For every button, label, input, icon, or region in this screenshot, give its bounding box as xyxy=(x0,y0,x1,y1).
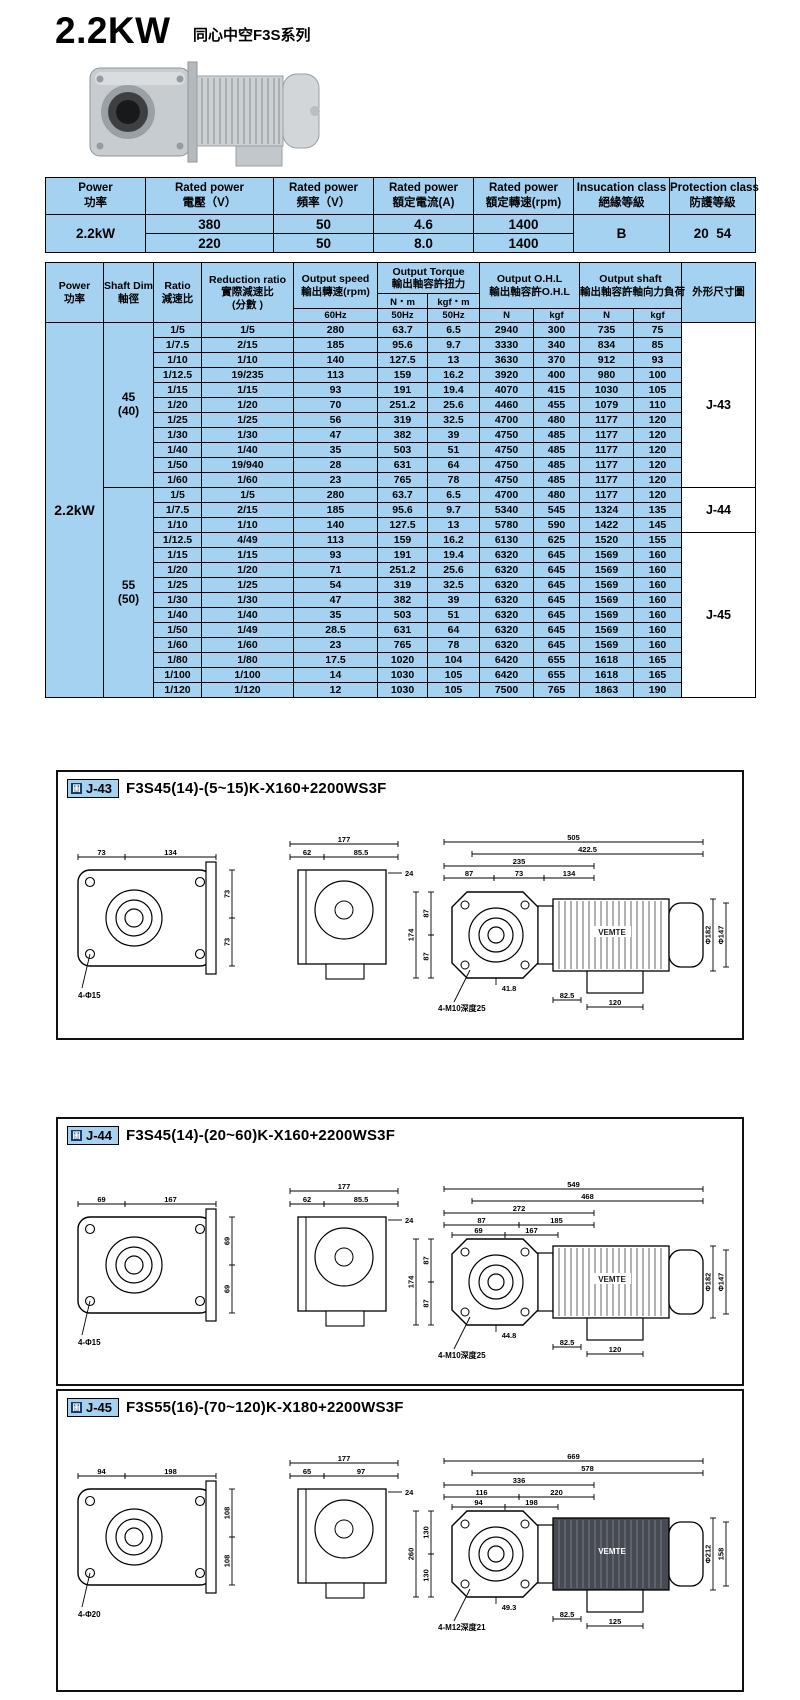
cell-shaftload-kgf: 120 xyxy=(634,428,682,443)
cell-torque-kgfm: 78 xyxy=(428,638,480,653)
cell-torque-kgfm: 9.7 xyxy=(428,338,480,353)
dimension-label: 94 xyxy=(474,1498,483,1507)
cell-ratio: 1/40 xyxy=(154,443,202,458)
circle-el xyxy=(196,1569,205,1578)
cell-reduction: 1/20 xyxy=(202,398,294,413)
cell-ohl-n: 3630 xyxy=(480,353,534,368)
dimension-label: 134 xyxy=(563,869,576,878)
shaft-alt-value: (50) xyxy=(104,593,153,607)
cell-torque-kgfm: 32.5 xyxy=(428,578,480,593)
cell-ratio: 1/30 xyxy=(154,593,202,608)
cell-shaftload-n: 912 xyxy=(580,353,634,368)
cell-torque-nm: 382 xyxy=(378,593,428,608)
cell-ohl-n: 6420 xyxy=(480,668,534,683)
cell-ohl-n: 4750 xyxy=(480,428,534,443)
cell-speed: 140 xyxy=(294,518,378,533)
diagram-label: 圖J-44 xyxy=(67,1126,119,1145)
cell-ohl-kgf: 485 xyxy=(534,458,580,473)
cell-speed: 93 xyxy=(294,383,378,398)
cell-shaftload-n: 980 xyxy=(580,368,634,383)
cell-ratio: 1/50 xyxy=(154,623,202,638)
spec-current: 4.6 xyxy=(374,215,474,234)
dimension-label: 87 xyxy=(422,1299,431,1307)
circle-el xyxy=(461,1308,469,1316)
div-el: 防護等級 xyxy=(670,196,755,211)
cell-speed: 113 xyxy=(294,533,378,548)
circle-el xyxy=(521,901,529,909)
cell-ohl-kgf: 400 xyxy=(534,368,580,383)
circle-el xyxy=(196,1225,205,1234)
cell-shaftload-n: 1422 xyxy=(580,518,634,533)
dimension-label: 97 xyxy=(357,1467,365,1476)
cell-shaftload-kgf: 145 xyxy=(634,518,682,533)
dimension-label: 158 xyxy=(717,1548,726,1561)
tr-el: 2.2kW 380 50 4.6 1400 B 20 54 xyxy=(46,215,756,234)
rect-el xyxy=(298,1489,386,1583)
circle-el xyxy=(196,878,205,887)
photo-bolt xyxy=(177,143,184,150)
cell-reduction: 1/15 xyxy=(202,548,294,563)
spec-current: 8.0 xyxy=(374,234,474,253)
circle-el xyxy=(461,901,469,909)
cell-shaftload-n: 1569 xyxy=(580,563,634,578)
cell-speed: 185 xyxy=(294,503,378,518)
cell-ohl-kgf: 485 xyxy=(534,473,580,488)
cell-shaftload-kgf: 93 xyxy=(634,353,682,368)
dimension-label: 116 xyxy=(475,1488,487,1497)
spec-col-protection: Protection class防護等級 xyxy=(670,178,756,215)
cell-shaftload-kgf: 160 xyxy=(634,608,682,623)
cell-shaftload-n: 1177 xyxy=(580,458,634,473)
dimension-label: 87 xyxy=(422,1256,431,1264)
cell-ohl-kgf: 645 xyxy=(534,608,580,623)
rect-el xyxy=(326,964,364,979)
cell-shaftload-n: 1569 xyxy=(580,593,634,608)
page-title: 2.2KW xyxy=(55,10,171,52)
rect-el xyxy=(669,903,703,967)
cell-torque-kgfm: 105 xyxy=(428,683,480,698)
cell-shaftload-kgf: 190 xyxy=(634,683,682,698)
diagram-id: J-44 xyxy=(86,1128,112,1143)
dimension-label: 167 xyxy=(164,1195,177,1204)
cell-reduction: 2/15 xyxy=(202,338,294,353)
dimension-label: VEMTE xyxy=(598,1547,626,1556)
cell-torque-nm: 319 xyxy=(378,413,428,428)
cell-torque-nm: 127.5 xyxy=(378,353,428,368)
dimension-label: Φ182 xyxy=(704,1273,713,1292)
col-ratio: Ratio減速比 xyxy=(154,263,202,323)
spec-power: 2.2kW xyxy=(46,215,146,253)
cell-speed: 47 xyxy=(294,593,378,608)
div-el: 功率 xyxy=(46,293,103,305)
diagram-box-j45: 圖J-45 F3S55(16)-(70~120)K-X180+2200WS3F … xyxy=(56,1389,744,1692)
dimension-label: 220 xyxy=(550,1488,563,1497)
cell-ohl-n: 4750 xyxy=(480,473,534,488)
div-el: 軸徑 xyxy=(104,293,153,305)
sub-kgf: kgf xyxy=(534,309,580,323)
rect-el xyxy=(78,870,212,966)
spec-insulation: B xyxy=(574,215,670,253)
cell-speed: 35 xyxy=(294,443,378,458)
cell-shaftload-n: 1569 xyxy=(580,623,634,638)
cell-reduction: 1/10 xyxy=(202,518,294,533)
cell-torque-kgfm: 104 xyxy=(428,653,480,668)
dimension-label: 44.8 xyxy=(502,1331,517,1340)
cell-ratio: 1/25 xyxy=(154,578,202,593)
cell-torque-kgfm: 19.4 xyxy=(428,548,480,563)
cell-reduction: 1/30 xyxy=(202,593,294,608)
cell-ratio: 1/15 xyxy=(154,383,202,398)
cell-ohl-n: 6420 xyxy=(480,653,534,668)
cell-reduction: 4/49 xyxy=(202,533,294,548)
cell-shaftload-n: 1079 xyxy=(580,398,634,413)
cell-ohl-n: 6320 xyxy=(480,638,534,653)
cell-torque-nm: 127.5 xyxy=(378,518,428,533)
div-el: 電壓（V） xyxy=(146,196,273,211)
cell-torque-kgfm: 32.5 xyxy=(428,413,480,428)
cell-outline-drawing-ref: J-44 xyxy=(682,488,756,533)
dimension-label: 125 xyxy=(609,1617,622,1626)
line-el xyxy=(454,970,470,1002)
cell-ohl-n: 6320 xyxy=(480,563,534,578)
cell-ratio: 1/5 xyxy=(154,323,202,338)
dimension-label: 69 xyxy=(223,1285,232,1293)
cell-ohl-kgf: 590 xyxy=(534,518,580,533)
circle-el xyxy=(461,1580,469,1588)
dimension-label: 108 xyxy=(223,1507,232,1520)
cell-reduction: 1/49 xyxy=(202,623,294,638)
col-shaft-dim: Shaft Dim軸徑 xyxy=(104,263,154,323)
col-outline-drawing: 外形尺寸圖 xyxy=(682,263,756,323)
cell-shaftload-n: 1569 xyxy=(580,638,634,653)
dimension-label: 468 xyxy=(581,1192,594,1201)
cell-torque-kgfm: 64 xyxy=(428,458,480,473)
cell-shaftload-kgf: 165 xyxy=(634,653,682,668)
cell-torque-nm: 1030 xyxy=(378,683,428,698)
spec-protection: 20 54 xyxy=(670,215,756,253)
circle-el xyxy=(196,950,205,959)
dimension-label: 4-Φ20 xyxy=(78,1610,101,1619)
rect-el xyxy=(587,971,643,993)
cell-speed: 23 xyxy=(294,638,378,653)
cell-ratio: 1/40 xyxy=(154,608,202,623)
diagram-title-row: 圖J-43 F3S45(14)-(5~15)K-X160+2200WS3F xyxy=(58,772,742,798)
dimension-label: 69 xyxy=(97,1195,105,1204)
cell-ratio: 1/60 xyxy=(154,473,202,488)
dimension-label: 24 xyxy=(405,1488,414,1497)
cell-shaftload-kgf: 110 xyxy=(634,398,682,413)
cell-shaftload-kgf: 160 xyxy=(634,623,682,638)
cell-torque-nm: 251.2 xyxy=(378,563,428,578)
cell-torque-nm: 159 xyxy=(378,533,428,548)
cell-speed: 28.5 xyxy=(294,623,378,638)
cell-shaftload-kgf: 105 xyxy=(634,383,682,398)
col-output-speed: Output speed輸出轉速(rpm) xyxy=(294,263,378,309)
spec-speed: 1400 xyxy=(474,234,574,253)
col-output-ohl: Output O.H.L輸出軸容許O.H.L xyxy=(480,263,580,309)
rect-el xyxy=(587,1590,643,1612)
div-el: 實際減速比 xyxy=(202,286,293,298)
rect-el xyxy=(206,1481,216,1593)
cell-torque-nm: 503 xyxy=(378,608,428,623)
series-subtitle: 同心中空F3S系列 xyxy=(193,24,311,45)
div-el: Power xyxy=(46,280,103,292)
cell-torque-kgfm: 19.4 xyxy=(428,383,480,398)
cell-shaftload-kgf: 120 xyxy=(634,443,682,458)
diagram-icon: 圖 xyxy=(71,783,82,794)
cell-ohl-kgf: 645 xyxy=(534,593,580,608)
diagram-icon: 圖 xyxy=(71,1130,82,1141)
cell-reduction: 1/60 xyxy=(202,638,294,653)
cell-ohl-kgf: 480 xyxy=(534,413,580,428)
cell-torque-nm: 95.6 xyxy=(378,503,428,518)
cell-reduction: 2/15 xyxy=(202,503,294,518)
cell-ratio: 1/30 xyxy=(154,428,202,443)
diagram-id: J-45 xyxy=(86,1400,112,1415)
cell-torque-nm: 765 xyxy=(378,638,428,653)
cell-torque-kgfm: 13 xyxy=(428,353,480,368)
div-el: 功率 xyxy=(46,196,145,211)
circle-el xyxy=(521,1248,529,1256)
div-el: (分數 ) xyxy=(202,299,293,311)
circle-el xyxy=(86,1497,95,1506)
cell-ohl-kgf: 645 xyxy=(534,578,580,593)
cell-shaftload-kgf: 100 xyxy=(634,368,682,383)
dimension-label: 120 xyxy=(609,1345,622,1354)
cell-speed: 280 xyxy=(294,323,378,338)
div-el: Ratio xyxy=(154,280,201,292)
diagram-id: J-43 xyxy=(86,781,112,796)
cell-torque-kgfm: 9.7 xyxy=(428,503,480,518)
photo-bolt xyxy=(177,76,184,83)
cell-reduction: 1/120 xyxy=(202,683,294,698)
cell-reduction: 1/60 xyxy=(202,473,294,488)
dimension-label: 41.8 xyxy=(502,984,517,993)
diagram-model-title: F3S55(16)-(70~120)K-X180+2200WS3F xyxy=(126,1399,404,1416)
cell-torque-nm: 631 xyxy=(378,458,428,473)
cell-torque-nm: 191 xyxy=(378,548,428,563)
dimension-label: 69 xyxy=(223,1237,232,1245)
cell-ratio: 1/10 xyxy=(154,353,202,368)
cell-torque-nm: 503 xyxy=(378,443,428,458)
cell-power: 2.2kW xyxy=(46,323,104,698)
cell-ohl-n: 6320 xyxy=(480,593,534,608)
diagram-box-j43: 圖J-43 F3S45(14)-(5~15)K-X160+2200WS3F 73… xyxy=(56,770,744,1040)
div-el: 輸出軸容許扭力 xyxy=(378,278,479,290)
div-el: Shaft Dim xyxy=(104,280,153,292)
cell-torque-kgfm: 78 xyxy=(428,473,480,488)
rect-el xyxy=(538,1525,553,1583)
dimension-label: 4-M10深度25 xyxy=(438,1350,486,1360)
cell-speed: 35 xyxy=(294,608,378,623)
dimension-label: 108 xyxy=(223,1555,232,1568)
cell-ohl-n: 7500 xyxy=(480,683,534,698)
cell-shaftload-n: 1618 xyxy=(580,653,634,668)
cell-torque-nm: 63.7 xyxy=(378,323,428,338)
col-power: Power功率 xyxy=(46,263,104,323)
cell-torque-nm: 1030 xyxy=(378,668,428,683)
dimension-label: Φ212 xyxy=(704,1545,713,1564)
diagram-label: 圖J-43 xyxy=(67,779,119,798)
photo-bore xyxy=(116,100,140,124)
cell-reduction: 1/100 xyxy=(202,668,294,683)
cell-reduction: 1/10 xyxy=(202,353,294,368)
cell-reduction: 1/30 xyxy=(202,428,294,443)
cell-reduction: 1/5 xyxy=(202,488,294,503)
photo-flange xyxy=(188,62,197,162)
dimension-label: Φ147 xyxy=(717,1273,726,1292)
cell-reduction: 1/40 xyxy=(202,443,294,458)
cell-ohl-kgf: 625 xyxy=(534,533,580,548)
cell-ohl-n: 6320 xyxy=(480,608,534,623)
cell-ratio: 1/120 xyxy=(154,683,202,698)
cell-speed: 23 xyxy=(294,473,378,488)
dimension-label: 177 xyxy=(338,1182,351,1191)
div-el: Rated power xyxy=(474,181,573,196)
dimension-label: 24 xyxy=(405,1216,414,1225)
dimension-label: 130 xyxy=(422,1569,431,1582)
dimension-label: 49.3 xyxy=(502,1603,517,1612)
sub-kgf: kgf xyxy=(634,309,682,323)
cell-torque-nm: 191 xyxy=(378,383,428,398)
dimension-label: VEMTE xyxy=(598,928,626,937)
cell-torque-nm: 63.7 xyxy=(378,488,428,503)
dimension-label: 235 xyxy=(513,857,526,866)
cell-torque-nm: 382 xyxy=(378,428,428,443)
cell-shaftload-n: 1618 xyxy=(580,668,634,683)
spec-col-insulation: Insucation class絕緣等級 xyxy=(574,178,670,215)
cell-speed: 140 xyxy=(294,353,378,368)
rect-el xyxy=(538,906,553,964)
ratio-row: 2.2kW45(40)1/51/528063.76.5294030073575J… xyxy=(46,323,756,338)
cell-ratio: 1/60 xyxy=(154,638,202,653)
dimension-label: VEMTE xyxy=(598,1275,626,1284)
dimension-label: 174 xyxy=(407,1275,416,1288)
cell-speed: 185 xyxy=(294,338,378,353)
dimension-label: 69 xyxy=(474,1226,482,1235)
rect-el xyxy=(206,862,216,974)
cell-ohl-kgf: 655 xyxy=(534,653,580,668)
cell-shaftload-n: 1569 xyxy=(580,608,634,623)
div-el: Rated power xyxy=(374,181,473,196)
photo-endcap xyxy=(310,106,320,116)
cell-outline-drawing-ref: J-43 xyxy=(682,323,756,488)
cell-ohl-n: 6130 xyxy=(480,533,534,548)
cell-ohl-n: 3330 xyxy=(480,338,534,353)
cell-outline-drawing-ref: J-45 xyxy=(682,533,756,698)
dimension-label: 87 xyxy=(422,952,431,960)
sub-n: N xyxy=(480,309,534,323)
cell-reduction: 1/25 xyxy=(202,413,294,428)
cell-torque-nm: 319 xyxy=(378,578,428,593)
rect-el xyxy=(538,1253,553,1311)
sub-50hz: 50Hz xyxy=(378,309,428,323)
cell-ohl-n: 6320 xyxy=(480,623,534,638)
ratio-table: Power功率 Shaft Dim軸徑 Ratio減速比 Reduction r… xyxy=(45,262,756,698)
cell-shaftload-n: 1177 xyxy=(580,443,634,458)
spec-col-voltage: Rated power電壓（V） xyxy=(146,178,274,215)
dimension-label: 87 xyxy=(465,869,473,878)
dimension-label: 87 xyxy=(477,1216,485,1225)
div-el: 額定轉速(rpm) xyxy=(474,196,573,211)
cell-ratio: 1/7.5 xyxy=(154,338,202,353)
dimension-label: 73 xyxy=(97,848,105,857)
cell-ratio: 1/12.5 xyxy=(154,368,202,383)
dimension-label: 177 xyxy=(338,1454,351,1463)
dimension-label: 85.5 xyxy=(354,1195,369,1204)
rect-el xyxy=(298,870,386,964)
circle-el xyxy=(461,961,469,969)
cell-ohl-n: 6320 xyxy=(480,578,534,593)
cell-reduction: 1/5 xyxy=(202,323,294,338)
cell-ratio: 1/20 xyxy=(154,398,202,413)
rect-el xyxy=(326,1311,364,1326)
cell-shaftload-n: 1569 xyxy=(580,548,634,563)
col-output-shaft: Output shaft輸出軸容許軸向力負荷 xyxy=(580,263,682,309)
dimension-label: 82.5 xyxy=(560,991,575,1000)
dimension-label: 4-M10深度25 xyxy=(438,1003,486,1013)
dimension-label: 578 xyxy=(581,1464,594,1473)
cell-torque-kgfm: 39 xyxy=(428,428,480,443)
div-el: Reduction ratio xyxy=(202,274,293,286)
photo-highlight xyxy=(95,72,185,85)
rect-el xyxy=(206,1209,216,1321)
div-el: 輸出轉速(rpm) xyxy=(294,286,377,298)
ratio-row: 55(50)1/51/528063.76.547004801177120J-44 xyxy=(46,488,756,503)
photo-motor-body xyxy=(197,76,283,146)
cell-reduction: 19/940 xyxy=(202,458,294,473)
tbody-el: 2.2kW45(40)1/51/528063.76.5294030073575J… xyxy=(46,323,756,698)
cell-ohl-kgf: 455 xyxy=(534,398,580,413)
sub-50hz: 50Hz xyxy=(428,309,480,323)
diagram-title-row: 圖J-44 F3S45(14)-(20~60)K-X160+2200WS3F xyxy=(58,1119,742,1145)
cell-reduction: 1/80 xyxy=(202,653,294,668)
dimension-label: 167 xyxy=(525,1226,538,1235)
circle-el xyxy=(86,878,95,887)
thead-el: Power功率 Shaft Dim軸徑 Ratio減速比 Reduction r… xyxy=(46,263,756,323)
div-el: Output shaft xyxy=(580,273,681,285)
diagram-title-row: 圖J-45 F3S55(16)-(70~120)K-X180+2200WS3F xyxy=(58,1391,742,1417)
cell-reduction: 1/40 xyxy=(202,608,294,623)
dimension-label: 73 xyxy=(515,869,523,878)
rect-el xyxy=(78,1489,212,1585)
cell-shaftload-kgf: 120 xyxy=(634,473,682,488)
sub-60hz: 60Hz xyxy=(294,309,378,323)
cell-speed: 93 xyxy=(294,548,378,563)
spec-speed: 1400 xyxy=(474,215,574,234)
cell-ratio: 1/20 xyxy=(154,563,202,578)
rect-el xyxy=(78,1217,212,1313)
cell-speed: 70 xyxy=(294,398,378,413)
col-output-torque: Output Torque輸出軸容許扭力 xyxy=(378,263,480,294)
cell-shaftload-kgf: 120 xyxy=(634,488,682,503)
spec-table: Power功率 Rated power電壓（V） Rated power頻率（V… xyxy=(45,177,756,253)
cell-ohl-kgf: 485 xyxy=(534,443,580,458)
dimension-label: 65 xyxy=(303,1467,311,1476)
div-el: Output O.H.L xyxy=(480,273,579,285)
dimension-label: 82.5 xyxy=(560,1338,575,1347)
cell-shaftload-n: 1177 xyxy=(580,473,634,488)
div-el: Output speed xyxy=(294,273,377,285)
cell-ohl-kgf: 370 xyxy=(534,353,580,368)
dimension-label: 130 xyxy=(422,1526,431,1539)
cell-ohl-n: 5340 xyxy=(480,503,534,518)
rect-el xyxy=(587,1318,643,1340)
cell-ohl-n: 4700 xyxy=(480,413,534,428)
cell-shaftload-kgf: 85 xyxy=(634,338,682,353)
div-el: Output Torque xyxy=(378,266,479,278)
tbody-el: 2.2kW 380 50 4.6 1400 B 20 54 220 50 8.0… xyxy=(46,215,756,253)
